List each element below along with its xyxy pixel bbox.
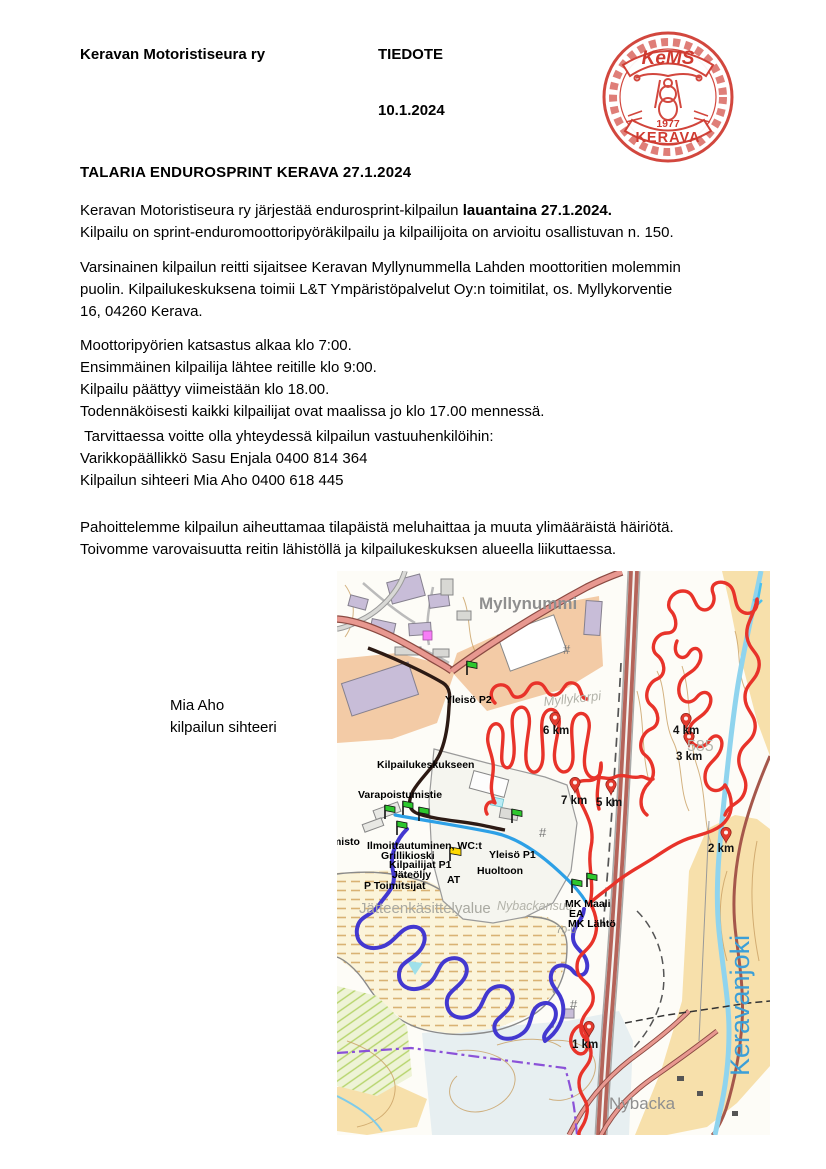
location-paragraph: Varsinainen kilpailun reitti sijaitsee K… (80, 257, 770, 323)
course-map-svg: Myllynummi Myllykorpi Yleisö P2 Kilpailu… (337, 571, 770, 1135)
km-label-6: 6 km (543, 725, 569, 737)
pink-building (423, 631, 432, 640)
contacts-line: Kilpailun sihteeri Mia Aho 0400 618 445 (80, 470, 770, 492)
location-line: puolin. Kilpailukeskuksena toimii L&T Ym… (80, 279, 770, 301)
schedule-line: Moottoripyörien katsastus alkaa klo 7:00… (80, 335, 770, 357)
km-label-2: 2 km (708, 843, 734, 855)
km-label-7: 7 km (561, 795, 587, 807)
km-label-4: 4 km (673, 725, 699, 737)
map-label-toimisto: Toimisto (337, 836, 360, 848)
intro-paragraph: Keravan Motoristiseura ry järjestää endu… (80, 200, 770, 244)
document-page: Keravan Motoristiseura ry TIEDOTE 10.1.2… (0, 0, 826, 1169)
km-label-1: 1 km (572, 1039, 598, 1051)
contacts-paragraph: Tarvittaessa voitte olla yhteydessä kilp… (80, 426, 770, 492)
map-label-yleiso-p2: Yleisö P2 (445, 694, 492, 706)
intro-line1-bold: lauantaina 27.1.2024. (463, 202, 612, 219)
map-label-nybacka: Nybacka (609, 1094, 676, 1113)
club-stamp-graphic: KeMS 1977 KERAVA (597, 28, 739, 166)
document-type: TIEDOTE (378, 46, 443, 63)
map-label-huoltoon: Huoltoon (477, 865, 523, 877)
stamp-year-text: 1977 (656, 118, 680, 130)
signature-name: Mia Aho (170, 695, 277, 717)
hash-symbol: # (563, 642, 571, 657)
schedule-paragraph: Moottoripyörien katsastus alkaa klo 7:00… (80, 335, 770, 423)
map-label-keravanjoki: Keravanjoki (725, 935, 755, 1076)
apology-line: Pahoittelemme kilpailun aiheuttamaa tila… (80, 517, 780, 539)
map-label-yleiso-p1: Yleisö P1 (489, 849, 536, 861)
schedule-line: Todennäköisesti kaikki kilpailijat ovat … (80, 401, 770, 423)
map-label-nybackansuu: Nybackansuu (497, 899, 573, 913)
stamp-club-text: KeMS (642, 48, 695, 69)
map-label-p-toimitsijat: P Toimitsijat (364, 880, 426, 892)
document-title: TALARIA ENDUROSPRINT KERAVA 27.1.2024 (80, 164, 411, 181)
location-line: Varsinainen kilpailun reitti sijaitsee K… (80, 257, 770, 279)
stamp-city-text: KERAVA (635, 130, 700, 146)
map-label-varapoistumistie: Varapoistumistie (358, 789, 442, 801)
hash-symbol: # (539, 825, 547, 840)
apology-line: Toivomme varovaisuutta reitin lähistöllä… (80, 539, 780, 561)
apology-paragraph: Pahoittelemme kilpailun aiheuttamaa tila… (80, 517, 780, 561)
km-label-3: 3 km (676, 751, 702, 763)
contacts-line: Varikkopäällikkö Sasu Enjala 0400 814 36… (80, 448, 770, 470)
contacts-line: Tarvittaessa voitte olla yhteydessä kilp… (80, 426, 770, 448)
organization-name: Keravan Motoristiseura ry (80, 46, 265, 63)
schedule-line: Ensimmäinen kilpailija lähtee reitille k… (80, 357, 770, 379)
map-label-kilpailukeskukseen: Kilpailukeskukseen (377, 759, 474, 771)
intro-line1-normal: Keravan Motoristiseura ry järjestää endu… (80, 202, 463, 219)
map-label-70-0: 70-0 (556, 925, 576, 936)
schedule-line: Kilpailu päättyy viimeistään klo 18.00. (80, 379, 770, 401)
course-map: Myllynummi Myllykorpi Yleisö P2 Kilpailu… (337, 571, 770, 1135)
map-label-jatteenkasittelyalue: Jätteenkäsittelyalue (359, 900, 491, 917)
signature-block: Mia Aho kilpailun sihteeri (170, 695, 277, 739)
km-label-5: 5 km (596, 797, 622, 809)
intro-line1: Keravan Motoristiseura ry järjestää endu… (80, 200, 770, 222)
hash-symbol: # (570, 997, 578, 1012)
motorcycle-icon (626, 74, 710, 122)
map-label-myllynummi: Myllynummi (479, 594, 577, 613)
document-date: 10.1.2024 (378, 102, 445, 119)
map-label-at: AT (447, 874, 461, 886)
location-line: 16, 04260 Kerava. (80, 301, 770, 323)
signature-role: kilpailun sihteeri (170, 717, 277, 739)
intro-line2: Kilpailu on sprint-enduromoottoripyöräki… (80, 222, 770, 244)
club-stamp: KeMS 1977 KERAVA (597, 28, 739, 166)
